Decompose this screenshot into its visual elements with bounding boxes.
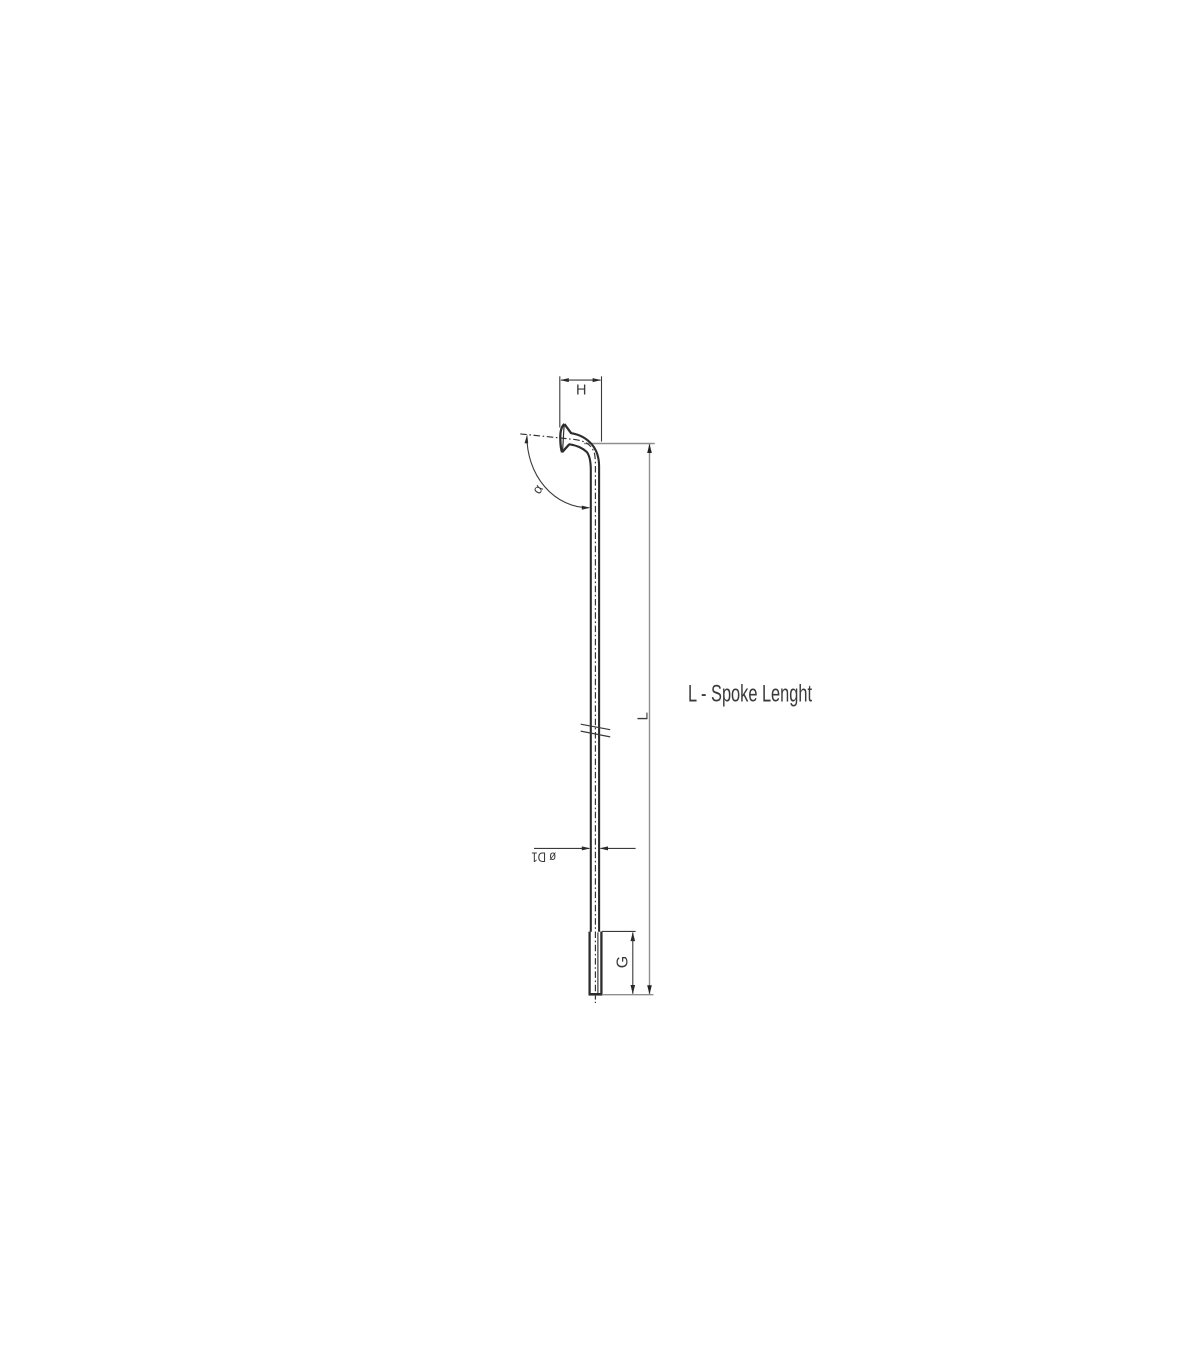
svg-text:ø D1: ø D1 bbox=[531, 850, 556, 866]
svg-text:H: H bbox=[576, 382, 586, 398]
svg-text:α: α bbox=[529, 482, 546, 497]
svg-text:L - Spoke Lenght: L - Spoke Lenght bbox=[688, 681, 812, 708]
svg-text:L: L bbox=[634, 712, 651, 720]
svg-text:G: G bbox=[614, 956, 631, 968]
